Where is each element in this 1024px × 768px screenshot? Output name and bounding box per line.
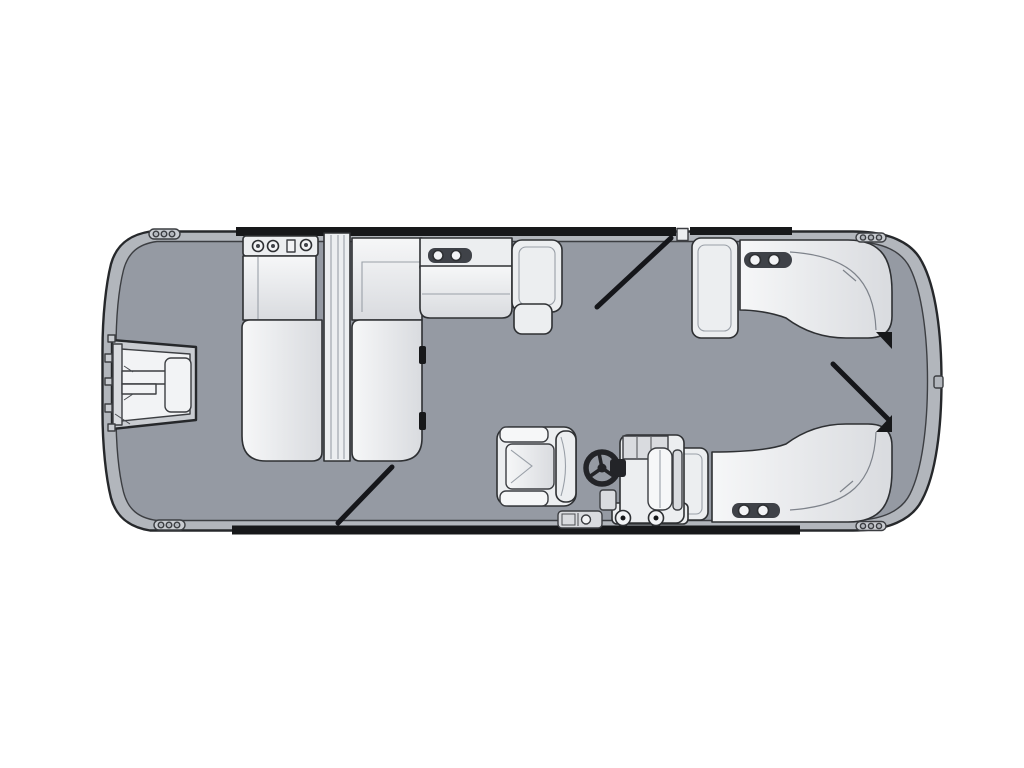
seatbelt-tab bbox=[419, 412, 426, 430]
cleat-bottom-left bbox=[154, 520, 185, 530]
forward-chaise-left bbox=[242, 320, 322, 461]
bench-cushion bbox=[420, 266, 512, 318]
wheel-hub bbox=[598, 464, 607, 473]
chaise-backrest-left bbox=[243, 256, 316, 320]
cupholder bbox=[739, 505, 750, 516]
ladder-step-2 bbox=[122, 384, 156, 394]
chair-armrest-top bbox=[500, 427, 548, 442]
forward-chaise-right bbox=[352, 320, 422, 461]
cleat-pin bbox=[161, 231, 167, 237]
cleat-bottom-right bbox=[856, 522, 886, 531]
chair-seat bbox=[506, 444, 554, 489]
cupholder bbox=[758, 505, 769, 516]
hinge-nub bbox=[105, 378, 112, 385]
cupholder bbox=[750, 255, 761, 266]
trim-band-top-right bbox=[690, 227, 792, 235]
transom-gear bbox=[558, 511, 602, 528]
console-wheel-hub bbox=[621, 516, 626, 521]
console-side-trim bbox=[673, 450, 682, 510]
bench-armrest-pad bbox=[514, 304, 552, 334]
cupholder bbox=[451, 251, 461, 261]
cleat-pin bbox=[876, 235, 881, 240]
seatbelt-tab bbox=[419, 346, 426, 364]
cleat-top-right bbox=[856, 233, 886, 242]
cleat-pin bbox=[169, 231, 175, 237]
cleat-pin bbox=[868, 235, 873, 240]
captain-chair bbox=[497, 427, 576, 506]
top-gate-hinge-post bbox=[677, 229, 688, 241]
cleat-top-left bbox=[149, 229, 180, 239]
wraparound-lounge-top bbox=[692, 238, 892, 338]
trim-band-top-left bbox=[236, 227, 676, 236]
gate-corner-bolt bbox=[108, 335, 115, 342]
cleat-pin bbox=[174, 522, 180, 528]
chaise-divider bbox=[324, 233, 350, 461]
forward-chaise-group bbox=[242, 233, 426, 461]
gate-door-panel bbox=[165, 358, 191, 412]
cupholder-center bbox=[256, 244, 260, 248]
cleat-pin bbox=[876, 523, 881, 528]
cupholder bbox=[769, 255, 780, 266]
trim-band-bottom bbox=[232, 526, 800, 535]
gate-hinge-bar bbox=[113, 344, 122, 425]
floorplan-canvas bbox=[0, 0, 1024, 768]
console-step bbox=[600, 490, 616, 510]
cleat-pin bbox=[868, 523, 873, 528]
cleat-pin bbox=[153, 231, 159, 237]
gate-corner-bolt bbox=[108, 424, 115, 431]
pontoon-floorplan bbox=[0, 0, 1024, 768]
cleat-pin bbox=[166, 522, 172, 528]
cupholder-center bbox=[304, 243, 308, 247]
boarding-gate-ladder bbox=[105, 335, 196, 431]
console-wheel-hub bbox=[654, 516, 659, 521]
cleat-pin bbox=[860, 523, 865, 528]
gear-roller bbox=[582, 515, 591, 524]
cleat-pin bbox=[158, 522, 164, 528]
cupholder-center bbox=[271, 244, 275, 248]
cupholder bbox=[433, 251, 443, 261]
hinge-nub bbox=[105, 354, 112, 362]
chair-armrest-bottom bbox=[500, 491, 548, 506]
hinge-nub bbox=[105, 404, 112, 412]
cleat-pin bbox=[860, 235, 865, 240]
console-switch bbox=[287, 240, 295, 252]
stern-tie-fitting bbox=[934, 376, 943, 388]
